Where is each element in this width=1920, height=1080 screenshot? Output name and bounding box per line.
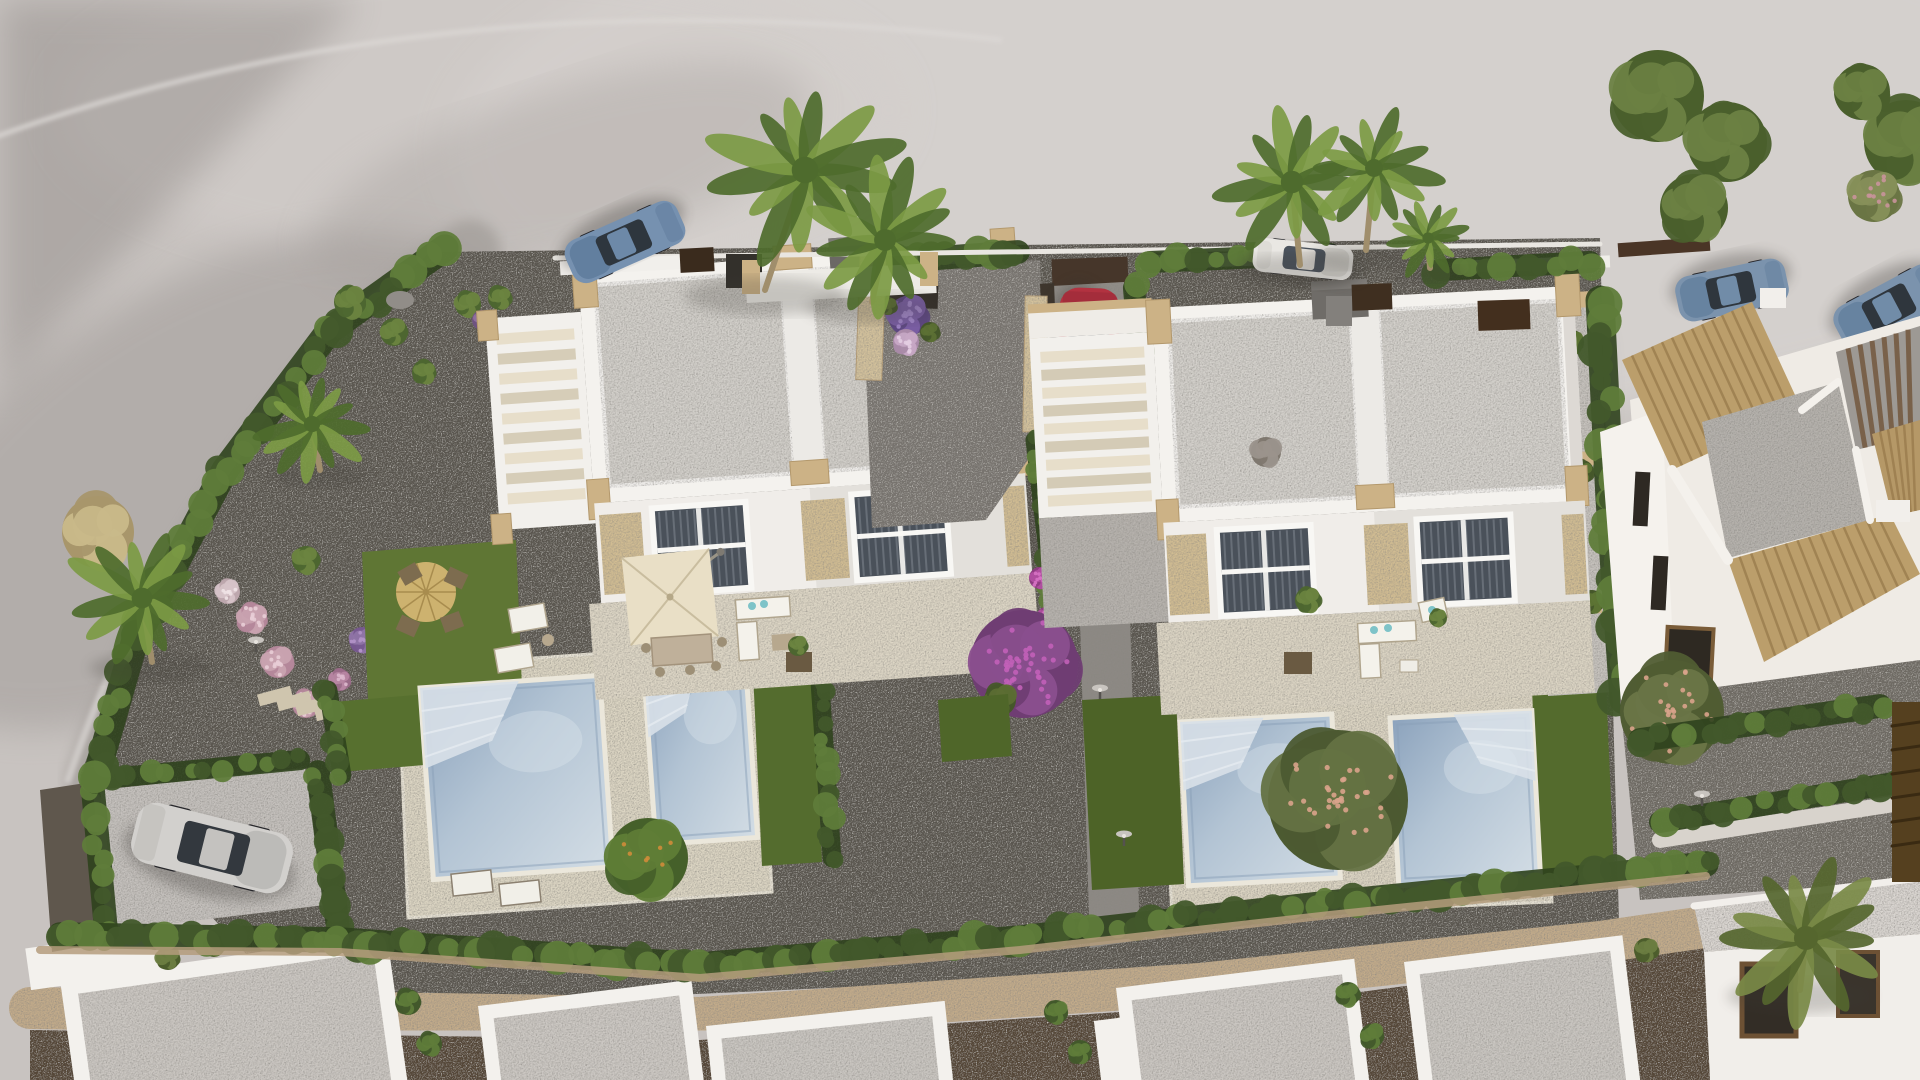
entry-gate bbox=[1352, 283, 1393, 310]
dining-table bbox=[651, 634, 713, 666]
facade-stone-panel bbox=[1166, 533, 1210, 615]
side-patio bbox=[1039, 512, 1169, 628]
lawn-right-east bbox=[1532, 682, 1614, 880]
stone-pillar bbox=[1356, 484, 1395, 510]
teal-cushion bbox=[748, 602, 756, 610]
stone-pillar bbox=[476, 310, 498, 341]
pouf bbox=[1400, 660, 1418, 672]
dining-chair bbox=[641, 643, 651, 653]
outdoor-sofa bbox=[1358, 620, 1417, 643]
lawn-center-small bbox=[938, 694, 1012, 762]
garden-rock bbox=[386, 291, 414, 309]
outdoor-sofa bbox=[735, 596, 790, 620]
facade-stone-panel bbox=[1364, 523, 1412, 605]
viewport bbox=[0, 0, 1920, 1080]
lawn-right-west bbox=[1082, 695, 1184, 890]
side-table bbox=[542, 634, 554, 646]
roof-slab bbox=[1169, 312, 1360, 507]
pool-right-east bbox=[1390, 711, 1541, 886]
dining-chair bbox=[717, 637, 727, 647]
aerial-render bbox=[0, 0, 1920, 1080]
lounge-chair bbox=[508, 603, 548, 633]
sun-lounger bbox=[451, 870, 493, 896]
outdoor-sofa bbox=[1359, 643, 1381, 678]
facade-stone-panel bbox=[1561, 514, 1587, 595]
dining-chair bbox=[655, 667, 665, 677]
chimney bbox=[1876, 500, 1910, 522]
dark-window-slot bbox=[1651, 556, 1669, 611]
stone-pillar bbox=[1565, 465, 1589, 506]
stone-pillar bbox=[1146, 299, 1172, 344]
louvered-window bbox=[1413, 511, 1518, 608]
stone-pillar bbox=[790, 459, 830, 486]
roof-slab bbox=[1378, 301, 1567, 496]
planter-box bbox=[1284, 652, 1312, 674]
dining-chair bbox=[711, 661, 721, 671]
dark-window-slot bbox=[1633, 472, 1651, 527]
pink-planter-flowers bbox=[893, 329, 919, 356]
entry-gate bbox=[1477, 299, 1530, 331]
timber-slat-fence bbox=[1892, 702, 1920, 882]
teal-cushion bbox=[1384, 624, 1392, 632]
stone-pillar bbox=[1555, 272, 1581, 317]
outdoor-sofa bbox=[737, 621, 760, 660]
stone-pillar bbox=[491, 513, 513, 544]
chimney bbox=[1760, 288, 1786, 308]
dining-chair bbox=[685, 665, 695, 675]
facade-stone-panel bbox=[801, 498, 850, 581]
utility-box bbox=[1326, 296, 1352, 326]
teal-cushion bbox=[760, 600, 768, 608]
pool-left-large bbox=[420, 675, 613, 879]
teal-cushion bbox=[1370, 626, 1378, 634]
sun-lounger bbox=[499, 880, 541, 906]
lounge-chair bbox=[494, 643, 534, 673]
entry-gate bbox=[679, 247, 714, 273]
